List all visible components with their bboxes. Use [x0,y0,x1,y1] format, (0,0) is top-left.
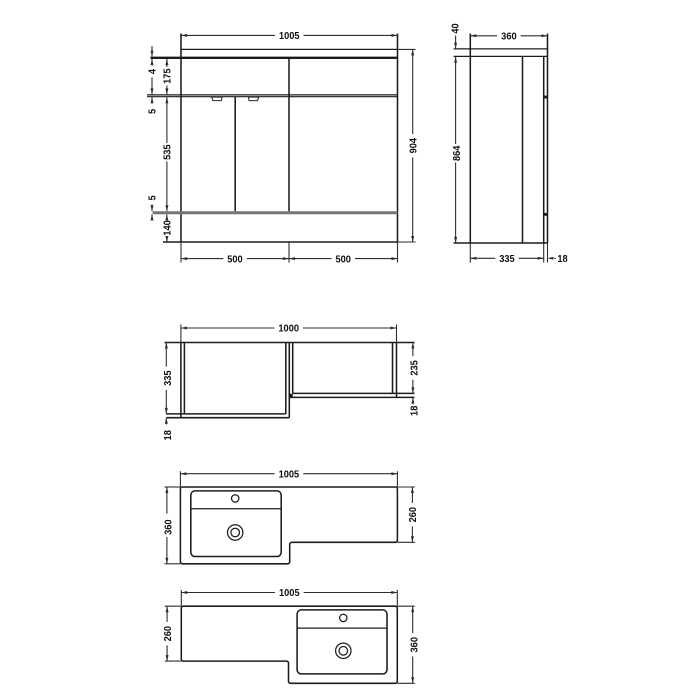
svg-text:1005: 1005 [279,468,300,480]
svg-text:360: 360 [501,31,517,43]
svg-text:140: 140 [162,220,174,236]
svg-text:1000: 1000 [278,323,299,335]
svg-text:18: 18 [557,253,567,265]
svg-text:18: 18 [408,406,420,416]
svg-text:335: 335 [162,370,174,386]
svg-text:260: 260 [162,626,174,642]
svg-text:335: 335 [499,253,515,265]
svg-text:500: 500 [227,253,243,265]
svg-text:175: 175 [162,68,174,84]
svg-text:18: 18 [162,430,174,440]
svg-text:535: 535 [162,144,174,160]
svg-text:360: 360 [408,637,420,653]
svg-text:5: 5 [147,195,159,200]
svg-text:500: 500 [336,253,352,265]
svg-text:1005: 1005 [279,587,300,599]
svg-text:4: 4 [147,69,159,74]
svg-text:5: 5 [147,109,159,114]
svg-text:40: 40 [450,23,462,33]
svg-text:1005: 1005 [279,30,300,42]
svg-text:904: 904 [407,138,419,154]
svg-text:864: 864 [451,145,463,161]
svg-text:260: 260 [407,507,419,523]
svg-text:235: 235 [409,360,421,376]
svg-text:360: 360 [163,519,175,535]
